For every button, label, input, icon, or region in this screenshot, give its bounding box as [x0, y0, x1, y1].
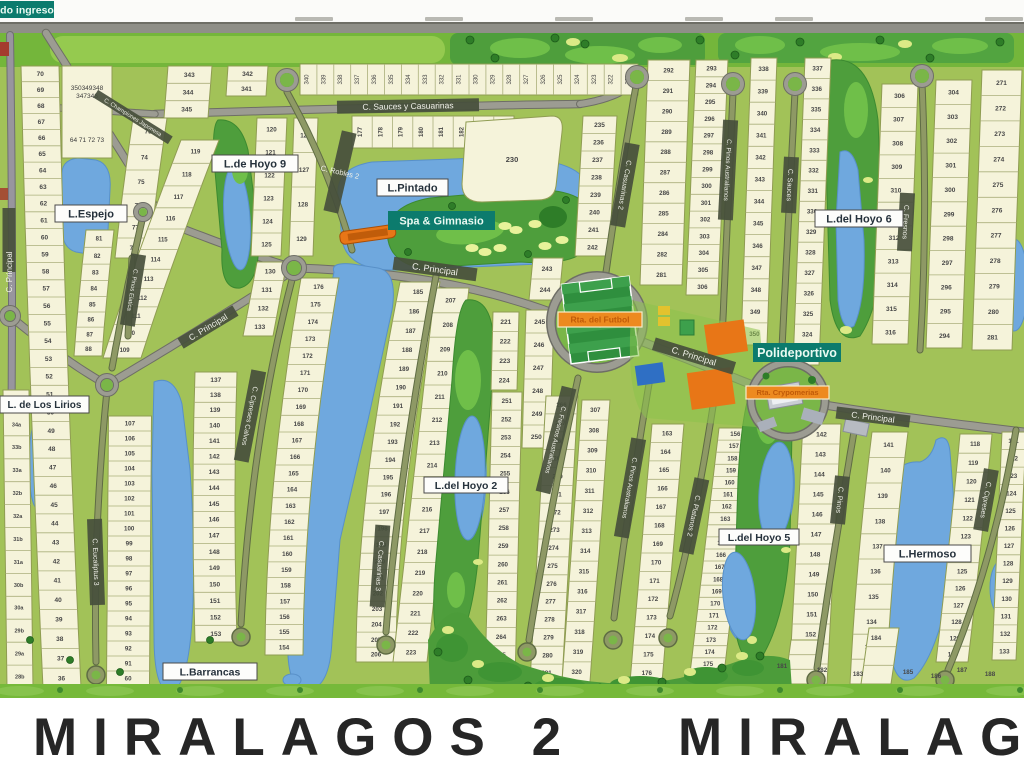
svg-text:133: 133	[999, 648, 1010, 655]
svg-text:140: 140	[209, 423, 220, 430]
svg-text:123: 123	[961, 534, 972, 541]
svg-text:279: 279	[543, 635, 554, 642]
svg-text:327: 327	[804, 270, 815, 277]
svg-text:342: 342	[755, 155, 766, 162]
svg-text:149: 149	[808, 571, 819, 578]
svg-text:L.del Hoyo 2: L.del Hoyo 2	[435, 480, 498, 492]
svg-text:38: 38	[56, 636, 64, 643]
svg-text:53: 53	[45, 356, 53, 363]
svg-text:58: 58	[42, 268, 50, 275]
svg-text:239: 239	[590, 192, 601, 199]
svg-text:207: 207	[445, 298, 456, 305]
svg-text:31a: 31a	[14, 560, 24, 566]
svg-text:186: 186	[409, 309, 420, 316]
svg-text:318: 318	[574, 629, 585, 636]
svg-text:281: 281	[987, 335, 998, 342]
svg-text:309: 309	[587, 448, 598, 455]
svg-text:203: 203	[372, 606, 383, 613]
svg-text:335: 335	[811, 106, 822, 113]
svg-text:172: 172	[648, 596, 659, 603]
svg-text:136: 136	[870, 569, 881, 576]
svg-text:34a: 34a	[12, 422, 22, 428]
svg-text:292: 292	[663, 67, 674, 74]
svg-text:144: 144	[209, 485, 220, 492]
svg-text:113: 113	[144, 277, 154, 283]
svg-text:287: 287	[660, 170, 671, 177]
svg-text:126: 126	[1005, 526, 1016, 533]
svg-text:159: 159	[281, 567, 292, 574]
svg-text:295: 295	[705, 99, 716, 106]
svg-text:166: 166	[657, 486, 668, 493]
svg-text:29b: 29b	[14, 629, 24, 635]
svg-text:138: 138	[875, 518, 886, 525]
svg-text:261: 261	[497, 580, 508, 587]
svg-text:Polideportivo: Polideportivo	[757, 346, 837, 360]
svg-text:308: 308	[892, 140, 903, 147]
svg-text:145: 145	[209, 501, 220, 508]
svg-text:186: 186	[931, 673, 942, 680]
svg-text:304: 304	[699, 250, 710, 257]
svg-text:87: 87	[86, 333, 93, 339]
svg-text:57: 57	[42, 286, 50, 293]
svg-text:68: 68	[37, 103, 45, 110]
svg-text:109: 109	[120, 348, 131, 354]
svg-text:323: 323	[592, 74, 598, 85]
svg-text:243: 243	[542, 266, 553, 273]
svg-text:137: 137	[210, 377, 221, 384]
svg-text:168: 168	[654, 523, 665, 530]
svg-text:334: 334	[406, 74, 412, 85]
svg-text:304: 304	[948, 90, 959, 97]
svg-text:307: 307	[590, 407, 601, 414]
svg-text:315: 315	[886, 306, 897, 313]
svg-text:316: 316	[885, 330, 896, 337]
svg-text:129: 129	[1002, 578, 1013, 585]
svg-text:48: 48	[48, 446, 56, 453]
svg-text:129: 129	[296, 236, 307, 243]
svg-text:183: 183	[853, 671, 864, 678]
svg-text:28b: 28b	[15, 675, 25, 681]
svg-text:301: 301	[701, 200, 712, 207]
svg-text:245: 245	[534, 319, 545, 326]
svg-text:41: 41	[54, 578, 62, 585]
svg-text:193: 193	[387, 439, 398, 446]
svg-text:349: 349	[750, 309, 761, 316]
svg-text:286: 286	[659, 190, 670, 197]
svg-text:308: 308	[589, 427, 600, 434]
svg-text:179: 179	[399, 126, 405, 137]
svg-text:56: 56	[43, 303, 51, 310]
svg-text:128: 128	[298, 201, 309, 208]
svg-text:149: 149	[209, 565, 220, 572]
svg-text:299: 299	[944, 211, 955, 218]
svg-text:272: 272	[995, 106, 1006, 113]
svg-text:119: 119	[968, 460, 979, 467]
svg-text:262: 262	[497, 598, 508, 605]
svg-text:155: 155	[279, 629, 290, 636]
svg-text:Spa & Gimnasio: Spa & Gimnasio	[399, 215, 484, 227]
svg-text:MIRALAGOS 2: MIRALAGOS 2	[33, 708, 577, 767]
svg-text:125: 125	[261, 242, 272, 249]
svg-text:294: 294	[706, 82, 717, 89]
svg-text:335: 335	[389, 74, 395, 85]
svg-text:342: 342	[242, 71, 253, 78]
svg-text:154: 154	[279, 645, 290, 652]
svg-text:135: 135	[868, 594, 879, 601]
svg-text:271: 271	[996, 80, 1007, 87]
svg-text:340: 340	[304, 74, 310, 85]
svg-text:167: 167	[656, 504, 667, 511]
svg-text:29a: 29a	[15, 652, 25, 658]
svg-text:343: 343	[755, 177, 766, 184]
svg-text:44: 44	[51, 521, 59, 528]
svg-text:331: 331	[808, 188, 819, 195]
svg-text:224: 224	[499, 378, 510, 385]
svg-text:248: 248	[532, 388, 543, 395]
svg-text:158: 158	[281, 583, 292, 590]
svg-text:121: 121	[964, 497, 975, 504]
svg-text:156: 156	[279, 614, 290, 621]
svg-text:40: 40	[54, 597, 62, 604]
svg-text:210: 210	[437, 370, 448, 377]
svg-text:315: 315	[579, 568, 590, 575]
svg-text:238: 238	[591, 175, 602, 182]
svg-text:336: 336	[812, 86, 823, 93]
svg-text:192: 192	[390, 421, 401, 428]
svg-text:117: 117	[174, 195, 184, 201]
svg-text:107: 107	[125, 421, 136, 428]
svg-text:278: 278	[990, 258, 1001, 265]
svg-text:160: 160	[725, 481, 736, 487]
svg-text:93: 93	[125, 631, 132, 638]
svg-text:158: 158	[727, 456, 738, 462]
svg-text:302: 302	[946, 138, 957, 145]
svg-text:147: 147	[209, 533, 220, 540]
svg-text:274: 274	[548, 545, 559, 552]
svg-text:106: 106	[125, 436, 136, 443]
svg-text:114: 114	[151, 258, 161, 264]
svg-text:223: 223	[499, 358, 510, 365]
svg-text:235: 235	[594, 122, 605, 129]
svg-text:C. Sauces y Casuarinas: C. Sauces y Casuarinas	[362, 100, 453, 112]
svg-text:337: 337	[355, 74, 361, 85]
svg-text:319: 319	[573, 649, 584, 656]
svg-text:314: 314	[887, 282, 898, 289]
svg-text:47: 47	[49, 465, 57, 472]
svg-text:182: 182	[459, 126, 465, 137]
svg-text:343: 343	[184, 72, 195, 79]
svg-text:221: 221	[410, 610, 421, 617]
svg-text:30a: 30a	[14, 606, 24, 612]
svg-text:171: 171	[300, 370, 311, 377]
svg-text:30b: 30b	[14, 583, 24, 589]
svg-text:278: 278	[544, 617, 555, 624]
svg-text:223: 223	[406, 650, 417, 657]
svg-text:341: 341	[756, 132, 767, 139]
svg-text:328: 328	[805, 250, 816, 257]
svg-text:347: 347	[752, 265, 763, 272]
svg-text:264: 264	[496, 634, 507, 641]
svg-text:275: 275	[992, 182, 1003, 189]
svg-text:144: 144	[814, 471, 825, 478]
svg-text:338: 338	[758, 66, 769, 73]
svg-text:339: 339	[321, 74, 327, 85]
svg-text:209: 209	[440, 346, 451, 353]
svg-text:94: 94	[125, 616, 132, 623]
svg-text:340: 340	[757, 110, 768, 117]
svg-text:194: 194	[385, 457, 396, 464]
svg-text:276: 276	[992, 207, 1003, 214]
svg-text:222: 222	[408, 630, 419, 637]
svg-text:187: 187	[405, 328, 416, 335]
svg-text:241: 241	[588, 227, 599, 234]
svg-text:240: 240	[589, 210, 600, 217]
svg-text:345: 345	[753, 221, 764, 228]
svg-text:85: 85	[89, 302, 96, 308]
svg-text:122: 122	[264, 173, 275, 180]
svg-text:174: 174	[705, 650, 716, 656]
svg-text:301: 301	[945, 163, 956, 170]
svg-text:157: 157	[729, 444, 740, 450]
svg-text:64: 64	[39, 168, 47, 175]
svg-text:211: 211	[435, 394, 446, 401]
svg-text:161: 161	[283, 535, 294, 542]
svg-text:212: 212	[432, 417, 443, 424]
svg-text:293: 293	[706, 66, 717, 73]
svg-text:250: 250	[531, 434, 542, 441]
svg-text:338: 338	[338, 74, 344, 85]
svg-text:333: 333	[809, 147, 820, 154]
svg-text:37: 37	[57, 656, 65, 663]
svg-text:218: 218	[417, 549, 428, 556]
svg-text:143: 143	[209, 469, 220, 476]
svg-text:95: 95	[125, 601, 132, 608]
svg-text:168: 168	[294, 421, 305, 428]
svg-text:282: 282	[657, 252, 668, 259]
svg-text:33a: 33a	[13, 468, 23, 474]
svg-text:Rta. del Futbol: Rta. del Futbol	[570, 315, 629, 325]
svg-text:341: 341	[241, 86, 252, 93]
svg-text:307: 307	[893, 117, 904, 124]
svg-text:36: 36	[58, 675, 66, 682]
svg-text:138: 138	[210, 392, 221, 399]
svg-text:152: 152	[805, 631, 816, 638]
svg-text:62: 62	[40, 201, 48, 208]
svg-text:142: 142	[816, 431, 827, 438]
svg-text:33b: 33b	[12, 445, 22, 451]
svg-text:254: 254	[500, 453, 511, 460]
svg-text:L.Barrancas: L.Barrancas	[180, 666, 241, 678]
svg-text:188: 188	[402, 347, 413, 354]
svg-text:303: 303	[947, 114, 958, 121]
svg-text:81: 81	[96, 237, 103, 243]
svg-text:118: 118	[182, 173, 192, 179]
svg-text:174: 174	[645, 633, 656, 640]
svg-text:131: 131	[1001, 613, 1012, 620]
svg-text:54: 54	[44, 338, 52, 345]
svg-text:329: 329	[806, 229, 817, 236]
svg-text:330: 330	[473, 74, 479, 85]
svg-text:143: 143	[815, 451, 826, 458]
svg-text:151: 151	[806, 611, 817, 618]
svg-text:333: 333	[423, 74, 429, 85]
svg-text:176: 176	[313, 284, 324, 291]
svg-text:306: 306	[697, 284, 708, 291]
svg-text:280: 280	[542, 652, 553, 659]
svg-text:88: 88	[85, 347, 92, 353]
svg-text:L.del Hoyo 5: L.del Hoyo 5	[728, 532, 791, 544]
svg-text:252: 252	[501, 416, 512, 423]
svg-text:55: 55	[44, 321, 52, 328]
svg-text:316: 316	[577, 589, 588, 596]
svg-text:346: 346	[752, 243, 763, 250]
svg-text:275: 275	[547, 563, 558, 570]
svg-text:195: 195	[383, 475, 394, 482]
svg-text:190: 190	[396, 385, 407, 392]
svg-text:101: 101	[124, 511, 135, 518]
svg-text:97: 97	[125, 571, 132, 578]
svg-text:Rta. Crypomerias: Rta. Crypomerias	[756, 388, 818, 397]
svg-text:317: 317	[576, 609, 587, 616]
svg-text:174: 174	[308, 319, 319, 326]
svg-text:147: 147	[811, 531, 822, 538]
svg-text:141: 141	[883, 442, 894, 449]
svg-text:92: 92	[125, 646, 132, 653]
svg-text:246: 246	[534, 342, 545, 349]
svg-text:258: 258	[499, 525, 510, 532]
svg-text:MIRALAGOS: MIRALAGOS	[678, 708, 1024, 767]
svg-text:160: 160	[282, 551, 293, 558]
svg-text:280: 280	[988, 309, 999, 316]
svg-text:298: 298	[943, 236, 954, 243]
svg-text:145: 145	[813, 491, 824, 498]
svg-text:197: 197	[379, 509, 390, 516]
svg-text:49: 49	[47, 428, 55, 435]
svg-text:171: 171	[709, 614, 720, 620]
svg-text:222: 222	[500, 339, 511, 346]
svg-text:166: 166	[716, 553, 727, 559]
svg-text:172: 172	[707, 626, 718, 632]
svg-text:130: 130	[265, 269, 276, 276]
svg-text:244: 244	[540, 287, 551, 294]
svg-text:306: 306	[894, 93, 905, 100]
svg-text:46: 46	[50, 483, 58, 490]
svg-text:L.Hermoso: L.Hermoso	[899, 548, 957, 560]
svg-text:165: 165	[659, 467, 670, 474]
svg-text:277: 277	[991, 233, 1002, 240]
svg-text:151: 151	[210, 598, 221, 605]
svg-text:297: 297	[942, 260, 953, 267]
svg-text:61: 61	[40, 218, 48, 225]
svg-text:119: 119	[191, 150, 201, 156]
svg-text:170: 170	[298, 387, 309, 394]
svg-text:299: 299	[702, 166, 713, 173]
svg-text:257: 257	[499, 507, 510, 514]
svg-text:221: 221	[500, 319, 511, 326]
svg-text:127: 127	[299, 167, 310, 174]
svg-text:196: 196	[381, 492, 392, 499]
svg-text:52: 52	[45, 374, 53, 381]
svg-text:162: 162	[722, 505, 733, 511]
svg-text:63: 63	[39, 184, 47, 191]
svg-text:125: 125	[1005, 508, 1016, 515]
svg-text:344: 344	[183, 89, 194, 96]
svg-text:L. de Los Lirios: L. de Los Lirios	[8, 400, 82, 411]
svg-text:189: 189	[399, 366, 410, 373]
svg-text:185: 185	[903, 669, 914, 676]
svg-text:220: 220	[413, 590, 424, 597]
svg-text:326: 326	[804, 291, 815, 298]
svg-text:230: 230	[506, 155, 519, 164]
svg-text:132: 132	[258, 306, 269, 313]
svg-text:334: 334	[810, 127, 821, 134]
svg-text:123: 123	[263, 196, 274, 203]
svg-text:331: 331	[457, 74, 463, 85]
svg-text:274: 274	[993, 156, 1004, 163]
svg-text:118: 118	[970, 441, 981, 448]
svg-text:260: 260	[498, 561, 509, 568]
svg-text:115: 115	[158, 237, 168, 243]
svg-text:127: 127	[1004, 543, 1015, 550]
svg-text:96: 96	[125, 586, 132, 593]
svg-text:150: 150	[209, 581, 220, 588]
svg-text:148: 148	[810, 551, 821, 558]
svg-text:163: 163	[662, 430, 673, 437]
svg-text:296: 296	[704, 116, 715, 123]
svg-text:163: 163	[720, 517, 731, 523]
svg-text:103: 103	[124, 481, 135, 488]
svg-text:L.del Hoyo 6: L.del Hoyo 6	[826, 213, 891, 225]
svg-text:322: 322	[609, 74, 615, 85]
svg-text:217: 217	[419, 528, 430, 535]
svg-text:326: 326	[541, 74, 547, 85]
svg-text:188: 188	[985, 671, 996, 678]
svg-text:302: 302	[700, 217, 711, 224]
svg-text:339: 339	[758, 88, 769, 95]
svg-text:166: 166	[290, 454, 301, 461]
svg-text:82: 82	[94, 254, 101, 260]
svg-text:128: 128	[951, 619, 962, 626]
svg-text:236: 236	[593, 140, 604, 147]
svg-text:39: 39	[55, 616, 63, 623]
svg-text:104: 104	[124, 466, 135, 473]
svg-text:329: 329	[490, 74, 496, 85]
svg-text:69: 69	[37, 87, 45, 94]
svg-text:126: 126	[955, 586, 966, 593]
svg-text:291: 291	[663, 88, 674, 95]
svg-text:32a: 32a	[13, 514, 23, 520]
svg-text:310: 310	[586, 468, 597, 475]
svg-text:277: 277	[545, 599, 556, 606]
svg-text:74: 74	[141, 155, 148, 162]
svg-text:345: 345	[181, 107, 192, 114]
svg-text:170: 170	[710, 602, 721, 608]
svg-text:294: 294	[939, 333, 950, 340]
svg-text:31b: 31b	[13, 537, 23, 543]
svg-text:43: 43	[52, 540, 60, 547]
svg-text:276: 276	[546, 581, 557, 588]
svg-text:298: 298	[703, 150, 714, 157]
svg-text:180: 180	[419, 126, 425, 137]
svg-text:242: 242	[587, 245, 598, 252]
svg-text:60: 60	[125, 676, 132, 683]
svg-text:259: 259	[498, 543, 509, 550]
svg-text:59: 59	[41, 251, 49, 258]
svg-text:171: 171	[649, 578, 660, 585]
svg-text:124: 124	[262, 219, 273, 226]
svg-text:300: 300	[944, 187, 955, 194]
svg-text:120: 120	[966, 479, 977, 486]
